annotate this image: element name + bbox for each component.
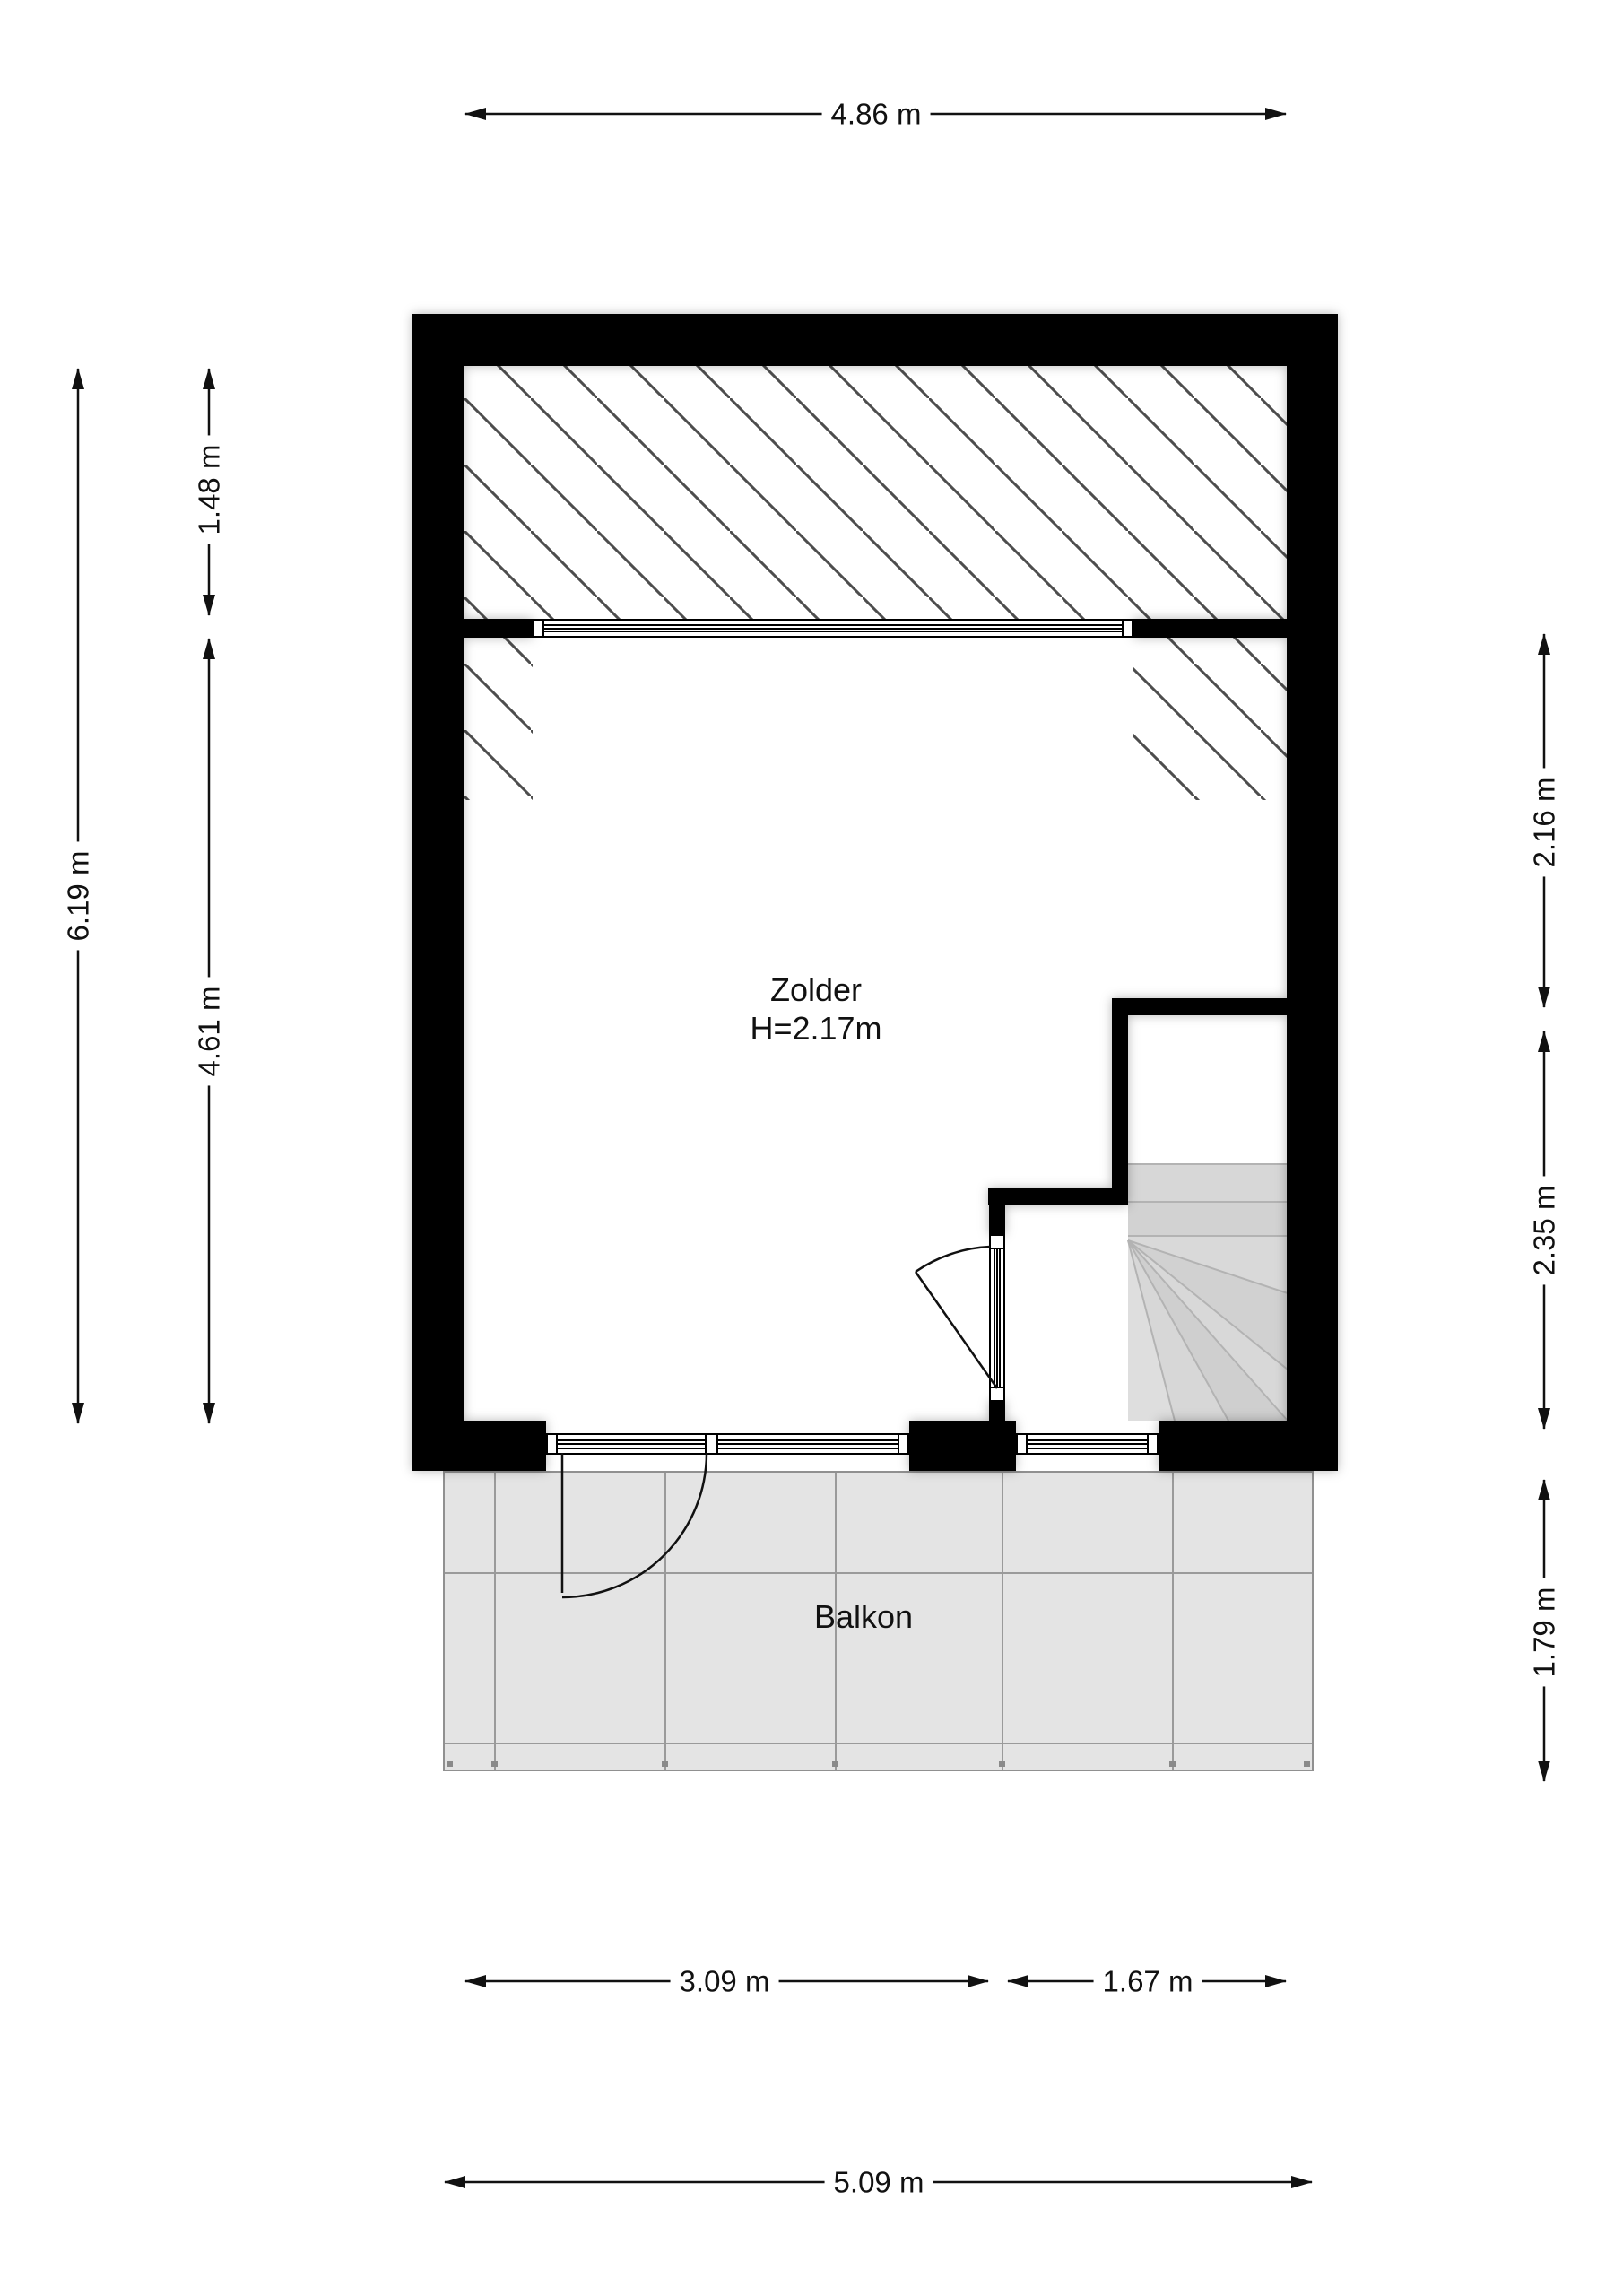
dimension-label-right-upper: 2.16 m [1527, 769, 1562, 877]
dimension-label-left-outer: 6.19 m [61, 842, 96, 951]
room-label-balkon: Balkon [814, 1601, 913, 1633]
room-height-label: H=2.17m [750, 1013, 881, 1045]
dimension-label-top: 4.86 m [822, 97, 931, 132]
dimension-label-right-lower: 1.79 m [1527, 1578, 1562, 1687]
dimension-label-right-middle: 2.35 m [1527, 1177, 1562, 1285]
dimension-label-left-lower: 4.61 m [192, 978, 227, 1086]
floorplan-canvas: 4.86 m 6.19 m 1.48 m 4.61 m 2.16 m 2.35 … [0, 0, 1623, 2296]
dimension-label-bottom-left: 3.09 m [671, 1964, 779, 1999]
balcony-door-swing [562, 1453, 707, 1597]
stairwell-door-swing [916, 1247, 997, 1388]
annotations-layer [0, 0, 1623, 2296]
dimension-label-left-upper: 1.48 m [192, 436, 227, 544]
dimension-label-bottom-total: 5.09 m [825, 2165, 933, 2200]
dimension-label-bottom-right: 1.67 m [1094, 1964, 1202, 1999]
room-label-zolder: Zolder [770, 974, 862, 1006]
